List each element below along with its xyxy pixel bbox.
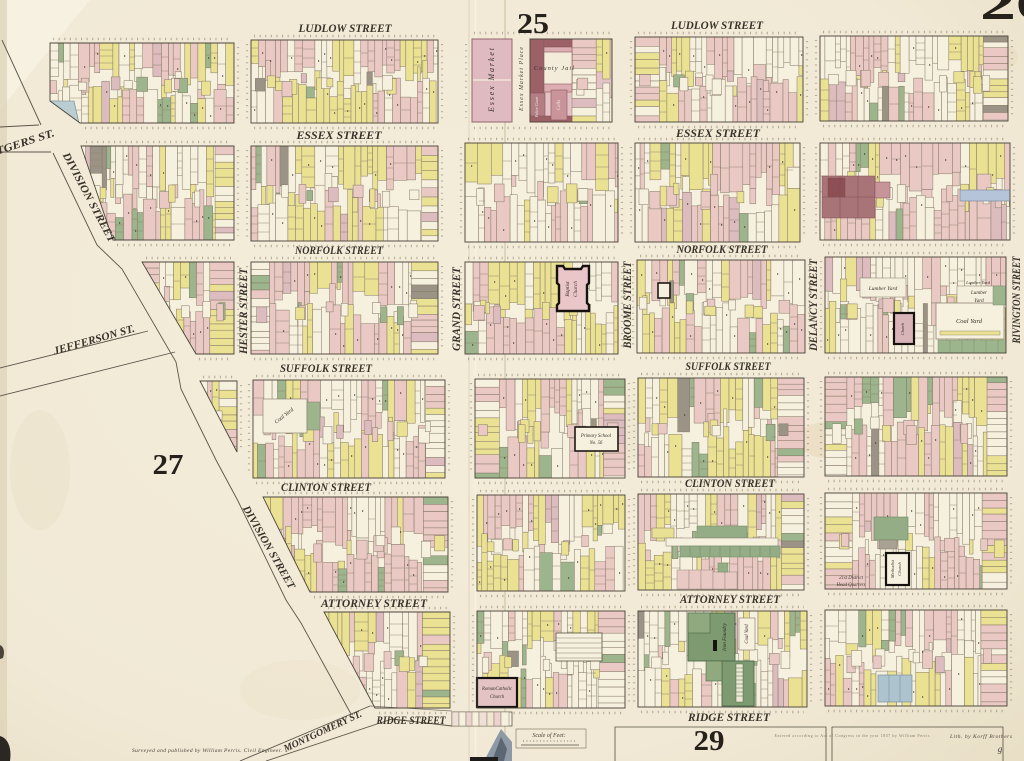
svg-text:SUFFOLK STREET: SUFFOLK STREET <box>280 363 373 375</box>
svg-text:Methodist: Methodist <box>890 559 895 579</box>
svg-text:26: 26 <box>980 0 1024 29</box>
svg-text:Primary School: Primary School <box>580 434 612 439</box>
svg-text:27: 27 <box>153 450 184 481</box>
svg-text:Church: Church <box>900 323 905 335</box>
svg-text:Coal Yard: Coal Yard <box>745 624 750 644</box>
svg-text:GRAND STREET: GRAND STREET <box>451 266 463 351</box>
svg-text:No. 56: No. 56 <box>589 441 603 446</box>
svg-text:NORFOLK STREET: NORFOLK STREET <box>676 244 769 256</box>
svg-text:HESTER STREET: HESTER STREET <box>238 267 250 355</box>
svg-text:Surveyed and published by Will: Surveyed and published by William Perris… <box>132 748 282 754</box>
svg-text:LUDLOW STREET: LUDLOW STREET <box>298 23 393 35</box>
svg-text:DELANCY STREET: DELANCY STREET <box>808 258 820 352</box>
svg-text:Lith. by Korff Brothers: Lith. by Korff Brothers <box>949 733 1012 740</box>
svg-text:Head Quarters: Head Quarters <box>836 583 866 588</box>
svg-text:RomanCatholic: RomanCatholic <box>481 687 513 692</box>
svg-text:g: g <box>998 744 1003 754</box>
svg-text:ATTORNEY STREET: ATTORNEY STREET <box>679 594 781 606</box>
svg-text:Police Court: Police Court <box>534 96 539 118</box>
svg-text:CLINTON STREET: CLINTON STREET <box>685 478 776 490</box>
svg-text:BROOME STREET: BROOME STREET <box>622 261 634 350</box>
svg-text:Lumber: Lumber <box>970 290 988 296</box>
svg-text:ATTORNEY STREET: ATTORNEY STREET <box>320 598 428 610</box>
svg-text:Lumber Yard: Lumber Yard <box>965 280 990 285</box>
svg-text:ESSEX STREET: ESSEX STREET <box>675 128 761 140</box>
svg-text:Baptist: Baptist <box>565 281 571 297</box>
svg-text:County Jail: County Jail <box>534 65 574 72</box>
svg-text:21st District: 21st District <box>839 576 864 581</box>
svg-text:ESSEX STREET: ESSEX STREET <box>295 130 382 142</box>
svg-text:CLINTON STREET: CLINTON STREET <box>281 482 372 494</box>
svg-text:Essex Market Place: Essex Market Place <box>519 47 525 112</box>
svg-text:LUDLOW STREET: LUDLOW STREET <box>670 20 764 32</box>
svg-text:RIVINGTON STREET: RIVINGTON STREET <box>1011 256 1023 345</box>
svg-text:Church: Church <box>897 561 902 575</box>
svg-text:Scale of Feet:: Scale of Feet: <box>532 732 565 739</box>
svg-text:Lumber Yard: Lumber Yard <box>868 286 898 292</box>
svg-text:29: 29 <box>694 726 725 757</box>
svg-text:Coal Yard: Coal Yard <box>956 318 983 325</box>
svg-text:RIDGE STREET: RIDGE STREET <box>687 712 771 724</box>
svg-text:NORFOLK STREET: NORFOLK STREET <box>294 245 384 257</box>
svg-text:Iron Foundry: Iron Foundry <box>722 622 728 652</box>
svg-text:Church: Church <box>490 695 505 700</box>
svg-text:Church: Church <box>573 281 579 297</box>
svg-text:RIDGE STREET: RIDGE STREET <box>376 715 447 727</box>
svg-text:25: 25 <box>517 9 549 40</box>
svg-text:Cells: Cells <box>557 100 562 110</box>
svg-text:Entered according to Act of Co: Entered according to Act of Congress in … <box>775 733 930 738</box>
svg-text:SUFFOLK STREET: SUFFOLK STREET <box>686 361 772 373</box>
